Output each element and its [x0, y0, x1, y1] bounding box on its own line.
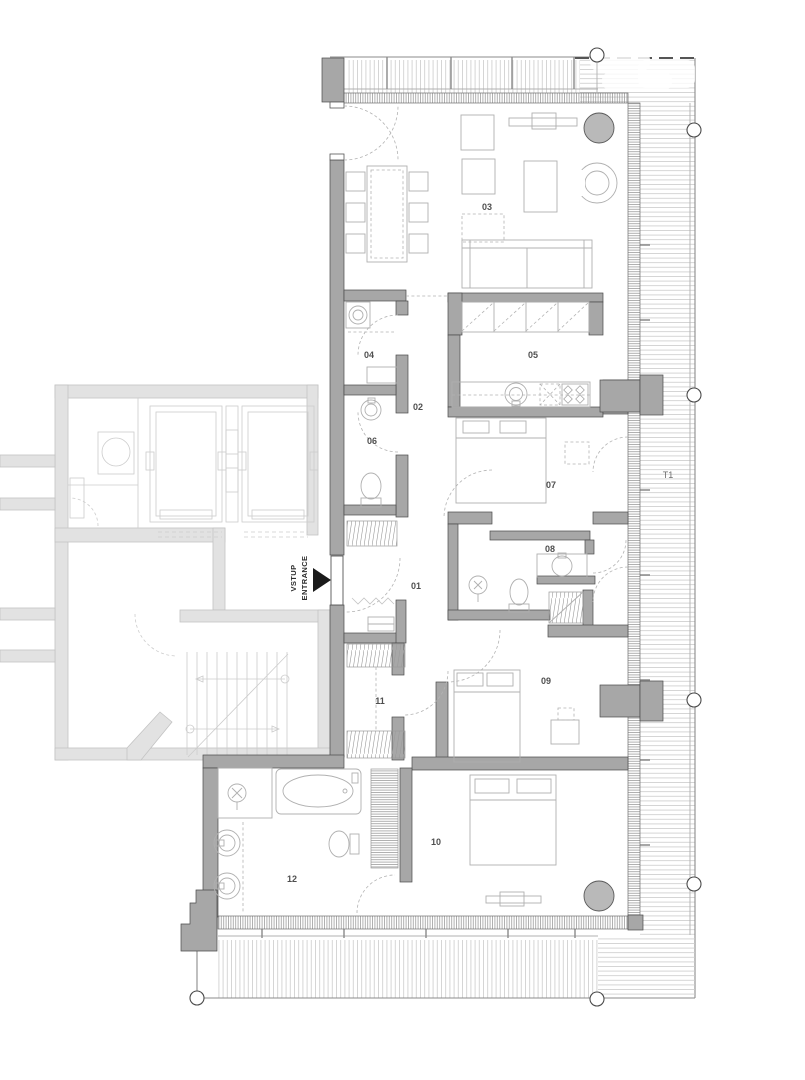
plant-circle-bedroom	[584, 881, 614, 911]
room-label-10: 10	[431, 837, 441, 847]
tv-bench-10	[486, 892, 541, 906]
context-building	[0, 385, 330, 760]
room-label-12: 12	[287, 874, 297, 884]
shower-12	[218, 768, 272, 818]
room-label-03: 03	[482, 202, 492, 212]
room-label-02: 02	[413, 402, 423, 412]
bathroom-06-sink	[361, 398, 381, 420]
entrance-annotation: VSTUP ENTRANCE	[289, 556, 331, 601]
context-utility-room	[68, 398, 138, 528]
doormat-01	[352, 598, 394, 604]
room-labels: 01 02 03 04 05 06 07 08 09 10 11 12 T1	[287, 202, 673, 884]
room-label-04: 04	[364, 350, 374, 360]
bed-10	[470, 775, 556, 865]
bathtub-12	[276, 769, 361, 814]
shower-08	[469, 576, 487, 602]
entrance-door-leaf	[331, 556, 343, 605]
entrance-arrow-icon	[313, 568, 331, 592]
entrance-label-entrance: ENTRANCE	[300, 556, 309, 601]
stove	[562, 384, 588, 405]
wardrobe-kitchen-05	[462, 302, 589, 332]
lounge-chair	[570, 163, 617, 203]
bed-07	[456, 418, 546, 503]
room-label-01: 01	[411, 581, 421, 591]
plant-circle-living	[584, 113, 614, 143]
room-label-11: 11	[375, 696, 385, 706]
kitchen-counter	[452, 382, 590, 407]
glazing	[218, 93, 640, 929]
floor-plan-canvas: 01 02 03 04 05 06 07 08 09 10 11 12 T1 V…	[0, 0, 805, 1080]
radiator-12	[371, 769, 398, 868]
terrace-bottom	[197, 929, 695, 998]
wardrobe-01	[347, 521, 397, 546]
toilet-08	[509, 579, 529, 612]
bathroom-06-toilet	[361, 473, 381, 507]
terrace-label: T1	[663, 470, 674, 480]
survey-marker	[687, 877, 701, 891]
toilet-12	[329, 831, 359, 857]
survey-marker	[687, 123, 701, 137]
survey-marker	[590, 48, 604, 62]
armchairs	[461, 115, 495, 194]
furniture	[214, 113, 617, 912]
apartment-walls	[181, 58, 663, 951]
nightstand-07	[565, 442, 589, 464]
kitchen-sink	[505, 383, 527, 405]
ottoman	[524, 161, 557, 212]
room-label-09: 09	[541, 676, 551, 686]
watermark-patch	[590, 50, 695, 90]
terrace-right	[640, 58, 695, 998]
shoe-rack-01	[368, 617, 394, 631]
desk-09	[551, 708, 579, 744]
room-label-07: 07	[546, 480, 556, 490]
survey-marker	[190, 991, 204, 1005]
towel-radiator-08	[549, 592, 583, 623]
dining-table	[346, 166, 428, 262]
floor-plan-page: 01 02 03 04 05 06 07 08 09 10 11 12 T1 V…	[0, 0, 805, 1080]
context-walls	[0, 385, 330, 760]
utility-bench	[367, 367, 397, 383]
bed-09	[454, 670, 520, 762]
corner-sofa	[462, 214, 592, 288]
survey-marker	[590, 992, 604, 1006]
elevators	[146, 406, 318, 537]
basins-12	[214, 822, 243, 912]
sink-08	[537, 553, 587, 577]
survey-marker	[687, 388, 701, 402]
room-label-06: 06	[367, 436, 377, 446]
dishwasher	[540, 384, 560, 405]
tv-sideboard	[509, 113, 577, 129]
entrance-label-vstup: VSTUP	[289, 564, 298, 591]
markers	[190, 48, 701, 1006]
room-label-05: 05	[528, 350, 538, 360]
washing-machine-04	[346, 302, 397, 383]
survey-marker	[687, 693, 701, 707]
room-label-08: 08	[545, 544, 555, 554]
